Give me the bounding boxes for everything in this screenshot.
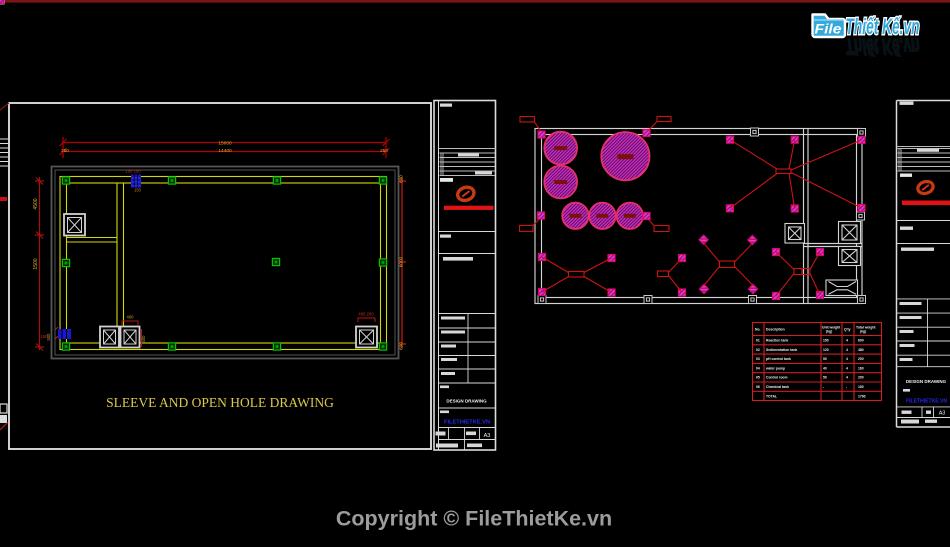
svg-text:-: - xyxy=(823,385,824,389)
svg-text:600: 600 xyxy=(399,175,404,183)
svg-text:DESIGN DRAWING: DESIGN DRAWING xyxy=(446,399,487,404)
svg-text:water pump: water pump xyxy=(765,366,785,370)
svg-text:150: 150 xyxy=(858,385,864,389)
svg-text:Thiết Kế.vn: Thiết Kế.vn xyxy=(846,34,920,59)
svg-text:File: File xyxy=(815,21,842,37)
svg-text:4500: 4500 xyxy=(33,198,39,209)
svg-text:1790: 1790 xyxy=(858,394,866,398)
svg-text:03: 03 xyxy=(756,357,760,361)
svg-text:06: 06 xyxy=(756,385,760,389)
svg-text:40: 40 xyxy=(823,366,827,370)
svg-text:6000: 6000 xyxy=(399,256,404,267)
svg-text:Q'ty: Q'ty xyxy=(844,328,851,332)
svg-text:DESIGN DRAWING: DESIGN DRAWING xyxy=(906,379,947,384)
svg-text:160: 160 xyxy=(858,366,864,370)
svg-text:400 200: 400 200 xyxy=(358,312,374,317)
svg-text:4: 4 xyxy=(846,376,848,380)
svg-text:250: 250 xyxy=(61,148,69,153)
svg-text:150: 150 xyxy=(823,339,829,343)
svg-text:4: 4 xyxy=(846,357,848,361)
svg-text:250: 250 xyxy=(380,148,388,153)
svg-text:01: 01 xyxy=(756,339,760,343)
svg-text:50: 50 xyxy=(823,376,827,380)
svg-text:(kg): (kg) xyxy=(860,330,866,334)
svg-text:A3: A3 xyxy=(484,433,491,439)
svg-text:50: 50 xyxy=(823,357,827,361)
svg-text:400: 400 xyxy=(141,335,146,343)
svg-text:05: 05 xyxy=(756,376,760,380)
svg-text:4: 4 xyxy=(846,339,848,343)
svg-text:No.: No. xyxy=(755,328,761,332)
svg-text:150 150: 150 150 xyxy=(125,168,141,173)
svg-text:150: 150 xyxy=(134,187,142,192)
svg-text:Reaction tank: Reaction tank xyxy=(766,339,788,343)
svg-text:600: 600 xyxy=(858,339,864,343)
svg-text:FILETHIETKE.VN: FILETHIETKE.VN xyxy=(444,420,490,426)
svg-text:Sedimentation tank: Sedimentation tank xyxy=(766,348,797,352)
svg-text:A3: A3 xyxy=(939,411,946,417)
svg-text:TOTAL: TOTAL xyxy=(766,394,777,398)
svg-text:02: 02 xyxy=(756,348,760,352)
svg-text:4: 4 xyxy=(846,366,848,370)
svg-text:Control room: Control room xyxy=(766,376,787,380)
svg-text:-: - xyxy=(846,385,847,389)
svg-text:400: 400 xyxy=(127,315,135,320)
svg-text:SLEEVE AND OPEN HOLE DRAWING: SLEEVE AND OPEN HOLE DRAWING xyxy=(106,395,334,410)
svg-text:600: 600 xyxy=(399,342,404,350)
svg-text:04: 04 xyxy=(756,366,760,370)
svg-text:Copyright © FileThietKe.vn: Copyright © FileThietKe.vn xyxy=(336,507,612,531)
svg-text:4: 4 xyxy=(846,348,848,352)
svg-text:Description: Description xyxy=(766,328,785,332)
svg-text:1500: 1500 xyxy=(33,258,39,269)
svg-text:15600: 15600 xyxy=(218,140,232,146)
svg-text:200: 200 xyxy=(858,357,864,361)
svg-text:120: 120 xyxy=(823,348,829,352)
svg-text:(kg): (kg) xyxy=(826,330,832,334)
svg-text:480: 480 xyxy=(858,348,864,352)
svg-text:Chemical tank: Chemical tank xyxy=(766,385,789,389)
svg-text:14400: 14400 xyxy=(218,148,232,154)
svg-text:pH control tank: pH control tank xyxy=(766,357,791,361)
svg-text:150: 150 xyxy=(41,334,49,339)
svg-text:200: 200 xyxy=(858,376,864,380)
svg-text:FILETHIETKE.VN: FILETHIETKE.VN xyxy=(906,399,947,405)
